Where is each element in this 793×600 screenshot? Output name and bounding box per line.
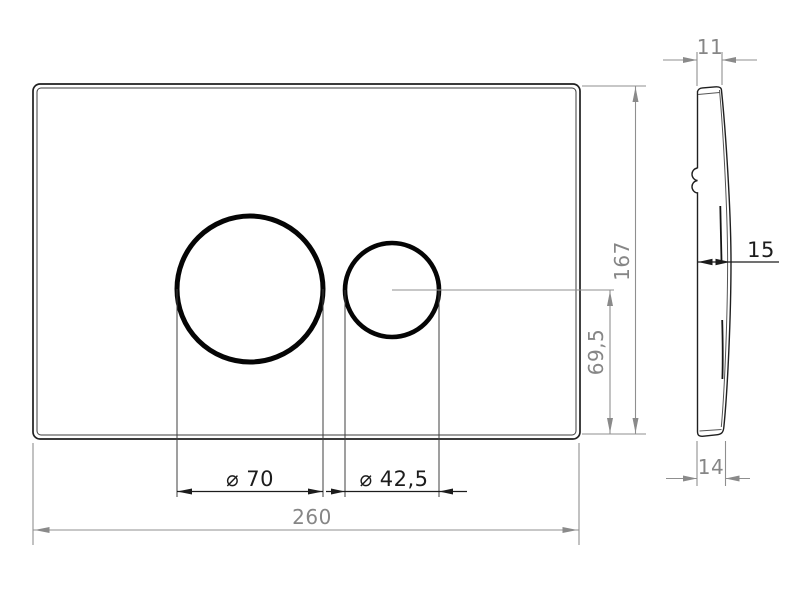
arrowhead-left-icon bbox=[177, 489, 192, 495]
front-view bbox=[33, 84, 580, 439]
technical-drawing: ⌀ 70 ⌀ 42,5 69,5 167 260 bbox=[0, 0, 793, 600]
mounting-clip-bumps bbox=[692, 168, 698, 193]
dim-label-11: 11 bbox=[697, 35, 723, 59]
dim-top-depth: 11 bbox=[663, 35, 757, 86]
profile-edge-segment-lower bbox=[722, 320, 723, 379]
dim-label-14: 14 bbox=[698, 455, 724, 479]
dim-label-15: 15 bbox=[747, 238, 775, 262]
arrowhead-right-icon bbox=[563, 527, 578, 533]
arrowhead-up-icon bbox=[607, 291, 613, 306]
dim-overall-height: 167 bbox=[582, 86, 646, 434]
arrowhead-down-icon bbox=[633, 418, 639, 433]
dim-label-69-5: 69,5 bbox=[584, 329, 608, 376]
arrowhead-left-icon bbox=[35, 527, 50, 533]
dim-label-d42-5: ⌀ 42,5 bbox=[359, 467, 428, 491]
arrowhead-right-icon bbox=[308, 489, 323, 495]
dim-bottom-depth: 14 bbox=[666, 441, 750, 486]
arrowhead-up-icon bbox=[633, 87, 639, 102]
arrowhead-left-icon bbox=[722, 57, 736, 63]
dim-overall-width: 260 bbox=[33, 443, 579, 545]
arrowhead-right-icon bbox=[683, 57, 697, 63]
profile-edge-segment-upper bbox=[720, 206, 721, 261]
arrowhead-right-icon bbox=[683, 476, 697, 482]
arrowhead-left-icon bbox=[331, 489, 345, 495]
dim-label-260: 260 bbox=[292, 505, 332, 529]
arrowhead-right-icon bbox=[439, 489, 453, 495]
arrowhead-left-icon bbox=[726, 476, 740, 482]
dim-label-167: 167 bbox=[610, 241, 634, 281]
drawing-canvas: ⌀ 70 ⌀ 42,5 69,5 167 260 bbox=[0, 0, 793, 600]
arrowhead-down-icon bbox=[607, 418, 613, 433]
dim-label-d70: ⌀ 70 bbox=[226, 467, 274, 491]
plate-outer-edge bbox=[33, 84, 580, 439]
